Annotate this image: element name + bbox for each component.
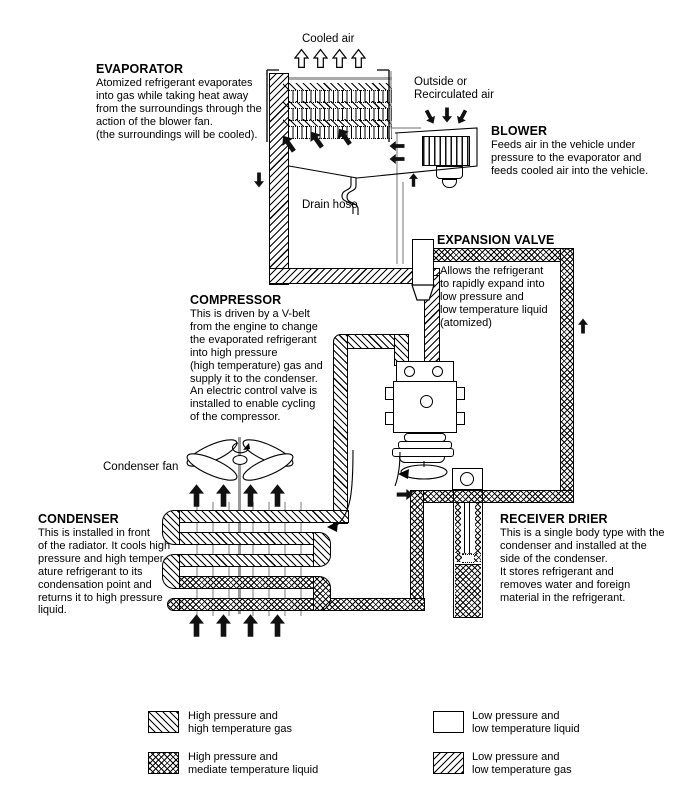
evaporator-core-frame-line	[283, 77, 392, 80]
legend-swatch-high-pressure-gas	[148, 711, 179, 733]
legend-swatch-high-pressure-liquid	[148, 752, 179, 774]
condenser-fan-label: Condenser fan	[103, 461, 178, 473]
duct-air-arrow-up	[409, 170, 418, 190]
pipe-right-wall-liquid-line	[560, 248, 574, 503]
expansion-valve-nozzle	[408, 284, 438, 302]
blower-air-arrow-left	[385, 154, 409, 164]
condenser-air-arrow-up	[216, 613, 231, 638]
intake-air-arrow-down	[453, 106, 471, 128]
blower-motor-tip	[442, 179, 457, 188]
outside-air-label: Outside or Recirculated air	[414, 76, 494, 102]
legend-swatch-low-pressure-liquid	[433, 711, 464, 733]
intake-air-arrow-down	[442, 105, 452, 125]
pipe-receiver-top	[410, 490, 574, 503]
cooled-air-label: Cooled air	[302, 33, 354, 45]
legend-label: Low pressure and low temperature gas	[472, 751, 632, 777]
intake-air-arrow-down	[421, 106, 439, 128]
condenser-air-arrow-up	[270, 613, 285, 638]
compressor-pulley	[399, 456, 445, 463]
evaporator-tube-strip	[283, 101, 392, 108]
ac-refrigeration-cycle-diagram: Cooled air Outside or Recirculated air D…	[0, 0, 700, 808]
refrigerant-arrow-down	[254, 170, 264, 190]
receiver-drier-shell	[453, 489, 483, 618]
expansion-valve-body	[412, 239, 434, 286]
condenser-row-1	[178, 510, 349, 523]
refrigerant-arrow-right	[393, 489, 417, 500]
condenser-air-arrow-up	[189, 483, 204, 508]
compressor-port	[404, 366, 415, 377]
blower-title: BLOWER	[491, 124, 547, 138]
refrigerant-arrow-up	[578, 314, 588, 338]
condenser-desc: This is installed in front of the radiat…	[38, 527, 198, 617]
condenser-row-2	[178, 532, 315, 545]
compressor-rotation-arrow	[401, 461, 447, 479]
cooled-air-arrow-up	[351, 48, 366, 69]
condenser-air-arrow-up	[216, 483, 231, 508]
compressor-center-bolt	[420, 395, 433, 408]
condenser-right-ubend	[313, 532, 331, 567]
cooled-air-arrow-up	[313, 48, 328, 69]
pipe-expansion-valve-inlet	[433, 248, 574, 262]
drain-hose-label: Drain hose	[302, 199, 358, 211]
legend-label: Low pressure and low temperature liquid	[472, 710, 632, 736]
evaporator-tube-strip	[283, 119, 392, 126]
receiver-sight-glass	[460, 472, 474, 486]
condenser-title: CONDENSER	[38, 512, 119, 526]
blower-air-arrow-left	[385, 141, 409, 151]
condenser-row-4	[178, 576, 315, 589]
pipe-riser	[410, 490, 424, 611]
compressor-port	[432, 366, 443, 377]
expansion-valve-desc: Allows the refrigerant to rapidly expand…	[440, 265, 560, 330]
compressor-title: COMPRESSOR	[190, 293, 281, 307]
expansion-valve-title: EXPANSION VALVE	[437, 233, 555, 247]
receiver-drier-title: RECEIVER DRIER	[500, 512, 608, 526]
condenser-air-arrow-up	[270, 483, 285, 508]
cooled-air-arrow-up	[332, 48, 347, 69]
condenser-row-5-bottom-line	[178, 598, 425, 611]
legend-swatch-low-pressure-gas	[433, 752, 464, 774]
cooled-air-arrow-up	[294, 48, 309, 69]
legend-label: High pressure and mediate temperature li…	[188, 751, 358, 777]
condenser-air-arrow-up	[243, 483, 258, 508]
evaporator-tube-strip	[283, 83, 392, 90]
blower-desc: Feeds air in the vehicle under pressure …	[491, 139, 681, 178]
evaporator-desc: Atomized refrigerant evaporates into gas…	[96, 77, 281, 142]
drain-tray-line	[289, 166, 357, 178]
receiver-drier-desc: This is a single body type with the cond…	[500, 527, 690, 604]
compressor-rotation-arrow-head	[398, 469, 409, 479]
blower-drum	[422, 136, 470, 166]
condenser-row-3	[178, 554, 315, 567]
evaporator-title: EVAPORATOR	[96, 62, 183, 76]
condenser-air-arrow-up	[243, 613, 258, 638]
legend-label: High pressure and high temperature gas	[188, 710, 348, 736]
compressor-desc: This is driven by a V-belt from the engi…	[190, 308, 350, 424]
condenser-right-ubend	[313, 576, 331, 611]
blower-motor	[436, 166, 463, 179]
